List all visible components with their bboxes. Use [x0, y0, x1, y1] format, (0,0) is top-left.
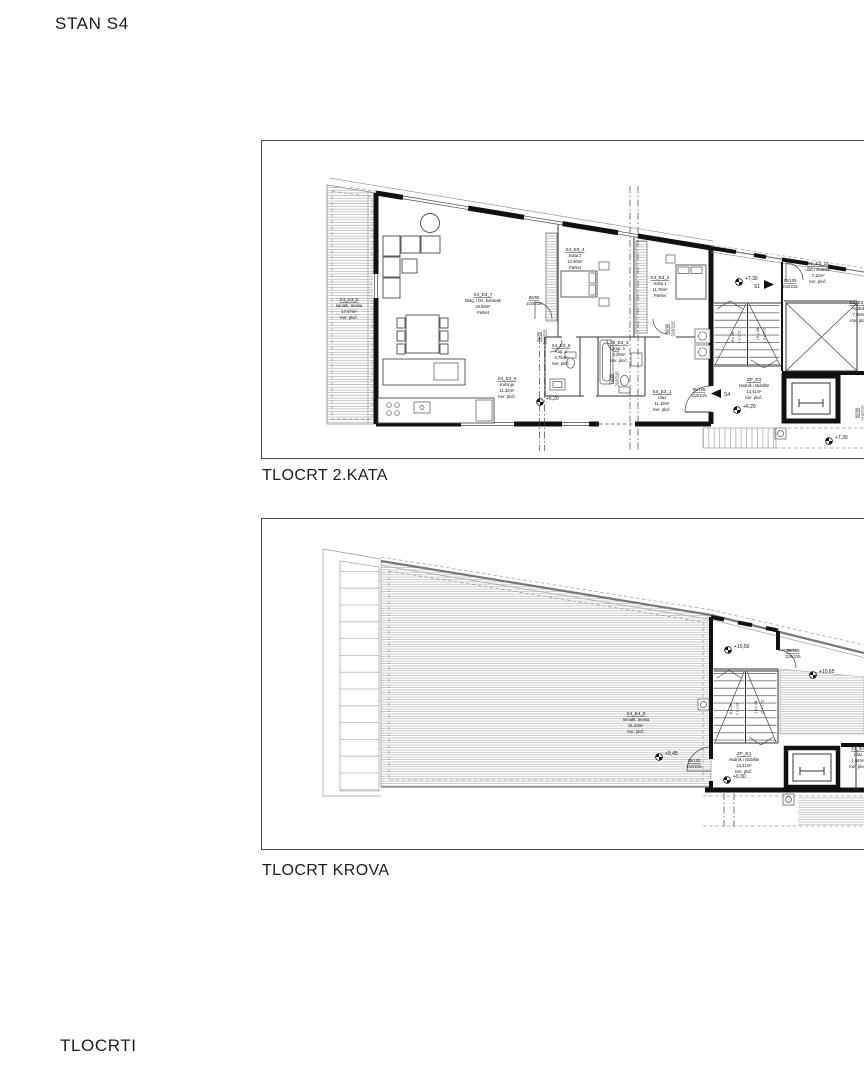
room-area: 11,32m² [499, 388, 515, 393]
door-size: 95/105 [787, 648, 800, 653]
room-name: Ulaz [658, 395, 666, 400]
door-size: 95/105 [784, 278, 797, 283]
stairs-core: 8 x 28 7 x 172 10 x 28 11 x 172 [714, 670, 778, 745]
drawing-sheet: { "page": { "title": "STAN S4", "footer"… [0, 0, 864, 1080]
room-id: S1_E3_1 [850, 300, 864, 305]
level-value: +6,20 [546, 396, 559, 402]
unit-arrow-icon [764, 280, 774, 289]
room-id: S4_E3_2 [651, 275, 670, 280]
room-area: 13,41m² [736, 763, 752, 768]
room-area: 7,36m² [852, 312, 864, 317]
stair-run-label: 8 x 28 [731, 332, 735, 342]
room-id: S4_E3_5 [552, 343, 571, 348]
neighbour-stair-void [786, 303, 857, 371]
room-area: 11,18m² [654, 401, 670, 406]
room-id: S4_E3_1 [653, 389, 672, 394]
door-height: 210/215 [671, 321, 676, 337]
floorplan-2nd-floor-frame: 8 x 28 7 x 172 10 x 28 9 x 172 [261, 140, 864, 459]
unit-arrow-icon [711, 389, 721, 398]
room-id: S4_E4_9 [627, 711, 646, 716]
sheet-title: STAN S4 [55, 14, 129, 34]
room-area: 11,76m² [652, 287, 668, 292]
dining-table [406, 315, 439, 353]
room-name: Kuhinja [500, 382, 515, 387]
room-area: 7,12m² [811, 273, 825, 278]
stair-run-label: 7 x 172 [738, 331, 742, 343]
room-area: 34,86m² [475, 304, 491, 309]
door-size: 80/90 [665, 323, 670, 334]
door-size: 70/80 [609, 373, 614, 384]
door-height: 210/215 [543, 329, 548, 345]
stairs-core: 8 x 28 7 x 172 10 x 28 9 x 172 [714, 301, 781, 368]
round-table [421, 214, 440, 233]
pergola-strip [340, 561, 379, 791]
stair-run-label: 7 x 172 [736, 703, 740, 715]
room-finish: Ker. ploč. [552, 361, 569, 366]
room-id: S4_E3_7 [474, 292, 493, 297]
level-value: +7,30 [835, 435, 848, 441]
roof-overhang-lines [329, 178, 864, 268]
door-size: 95/105 [688, 758, 701, 763]
room-name: Ulaz [854, 752, 862, 757]
floorplan-2nd-floor-drawing: 8 x 28 7 x 172 10 x 28 9 x 172 [262, 141, 864, 458]
room-id: S4_E3_6 [498, 376, 517, 381]
room-id: ZP_E3 [747, 377, 761, 382]
plan-caption-2nd-floor: TLOCRT 2.KATA [262, 467, 388, 485]
door-size: 80/90 [529, 295, 540, 300]
room-id: ZP_E4 [737, 751, 751, 756]
level-value: +10,65 [819, 669, 835, 675]
room-finish: Parket [569, 265, 582, 270]
stair-run-label: 11 x 172 [761, 700, 765, 714]
level-value: +9,30 [733, 774, 746, 780]
door-size: 95/105 [693, 387, 706, 392]
room-id: S4_E3_3 [610, 340, 629, 345]
unit-arrow-label: S1 [754, 284, 760, 290]
door-size: 75/85 [537, 331, 542, 342]
room-area: 3,75m² [554, 355, 568, 360]
level-value: +7,30 [745, 276, 758, 282]
sheet-footer: TLOCRTI [60, 1036, 137, 1056]
door-height: 210/215 [691, 393, 707, 398]
window [402, 194, 468, 212]
core-and-neighbour-walls [711, 248, 864, 373]
window [617, 229, 638, 239]
room-name: Soba 1 [653, 281, 667, 286]
room-name: Blag. i Dn. boravak [465, 298, 501, 303]
room-id: S1_E3_14 [807, 261, 829, 266]
room-finish: Ker. ploč. [745, 395, 762, 400]
door-height: 210/215 [861, 405, 864, 421]
room-name: Kup. 1 [613, 346, 626, 351]
room-name: Hodnik i stubište [729, 757, 760, 762]
door-height: 210/215 [782, 284, 798, 289]
stair-run-label: 9 x 172 [763, 328, 767, 340]
room-name: nenatk. terasa [623, 717, 650, 722]
room-finish: Parket [477, 310, 490, 315]
living-room-furniture [383, 214, 448, 355]
door-height: 210/215 [526, 301, 542, 306]
elevator [775, 376, 838, 439]
room-finish: Ker. ploč. [340, 315, 357, 320]
kitchen-furniture [378, 359, 494, 423]
room-name: Hodnik [852, 306, 864, 311]
room-finish: Ker. ploč. [653, 407, 670, 412]
room-area: 1,64m² [851, 758, 864, 763]
room-area: 61,33m² [628, 723, 644, 728]
room-finish: Ker. ploč. [809, 279, 826, 284]
room-area: 17,57m² [341, 309, 357, 314]
room-id: S1_E4 [851, 746, 864, 751]
level-value: +6,20 [743, 404, 756, 410]
room-id: S4_E3_8 [340, 297, 359, 302]
room-finish: Ker. ploč. [498, 394, 515, 399]
stair-run-label: 10 x 28 [754, 701, 758, 713]
room-name: nenatk. terasa [336, 303, 363, 308]
floorplan-roof-frame: 8 x 28 7 x 172 10 x 28 11 x 172 [261, 518, 864, 850]
room-area: 4,29m² [612, 352, 626, 357]
room-finish: Ker. ploč. [610, 358, 627, 363]
room-name: Hodnik i stubište [739, 383, 770, 388]
room-name: Soba 2 [568, 253, 582, 258]
door-size: 80/90 [855, 407, 860, 418]
window [562, 420, 589, 427]
room-id: S4_E3_4 [566, 247, 585, 252]
plan-caption-roof: TLOCRT KROVA [262, 862, 390, 880]
door-height: 210/215 [615, 371, 620, 387]
stair-run-label: 8 x 28 [729, 704, 733, 714]
elevator [786, 748, 838, 787]
stair-run-label: 10 x 28 [756, 328, 760, 340]
sliding-door [599, 420, 635, 427]
level-value: +10,50 [734, 644, 750, 650]
unit-arrow-label: S4 [724, 392, 730, 398]
room-finish: Ker. ploč. [627, 729, 644, 734]
room-name: ulaz i stubište [805, 267, 831, 272]
room-area: 13,41m² [746, 389, 762, 394]
room-area: 12,90m² [567, 259, 583, 264]
floorplan-roof-drawing: 8 x 28 7 x 172 10 x 28 11 x 172 [262, 519, 864, 849]
door-height: 210/215 [686, 764, 702, 769]
neighbour-roof-area [780, 669, 864, 734]
room-finish: Ker. ploč. [849, 764, 864, 769]
door-height: 210/215 [785, 654, 801, 659]
room-finish: Parket [654, 293, 667, 298]
room-finish: Ker. ploč. [850, 318, 864, 323]
room-name: Kup. 2 [555, 349, 568, 354]
terrace-door [372, 274, 379, 298]
level-value: +9,45 [665, 751, 678, 757]
